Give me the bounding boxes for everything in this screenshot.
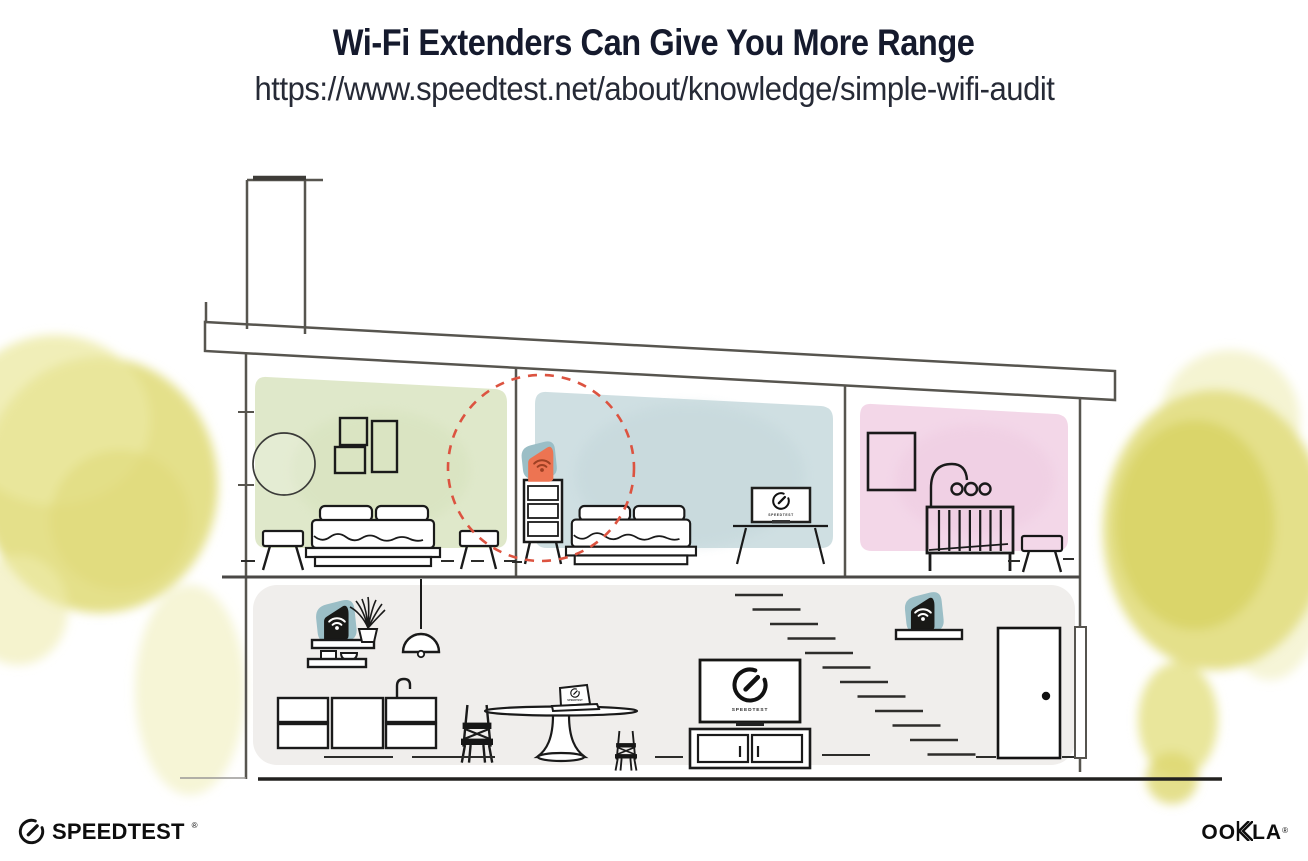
wifi-extender-highlighted	[520, 441, 558, 482]
stool-pink	[1022, 536, 1062, 572]
house-cross-section-illustration: SPEEDTEST	[0, 0, 1308, 861]
infographic-stage: Wi-Fi Extenders Can Give You More Range …	[0, 0, 1308, 861]
speedtest-wordmark: SPEEDTEST	[52, 819, 185, 845]
laptop-label: SPEEDTEST	[567, 698, 583, 702]
header: Wi-Fi Extenders Can Give You More Range …	[0, 22, 1308, 108]
bed-blue	[566, 506, 696, 564]
ookla-wordmark-left: OO	[1201, 821, 1236, 845]
speedtest-logo[interactable]: SPEEDTEST ®	[18, 818, 198, 845]
page-title: Wi-Fi Extenders Can Give You More Range	[333, 22, 975, 64]
tree-right	[1103, 350, 1308, 804]
ookla-logo[interactable]: OO LA ®	[1201, 819, 1288, 845]
tv-bedroom-label: SPEEDTEST	[768, 513, 794, 517]
stairs-shelf	[896, 630, 962, 639]
media-console	[690, 729, 810, 768]
ookla-wordmark-right: LA	[1252, 821, 1282, 845]
speedtest-gauge-icon	[18, 818, 45, 845]
ground-line	[180, 778, 1222, 779]
tree-left	[0, 335, 245, 795]
watercolor-patch-pink	[895, 425, 1055, 535]
registered-mark: ®	[1282, 826, 1288, 835]
ookla-k-icon	[1235, 821, 1253, 841]
door-knob	[1042, 692, 1050, 700]
living-room-tv: SPEEDTEST	[690, 660, 810, 768]
downspout	[1075, 627, 1086, 758]
tv-living-label: SPEEDTEST	[732, 707, 769, 713]
bed-green	[306, 506, 440, 566]
tv-bedroom: SPEEDTEST	[752, 488, 810, 524]
registered-mark: ®	[192, 821, 198, 830]
entry-door	[998, 628, 1060, 758]
stool-right	[460, 531, 498, 569]
chimney	[247, 178, 323, 334]
dresser	[524, 480, 562, 564]
stool-left	[263, 531, 303, 570]
source-url[interactable]: https://www.speedtest.net/about/knowledg…	[254, 70, 1054, 108]
round-mirror	[253, 433, 315, 495]
